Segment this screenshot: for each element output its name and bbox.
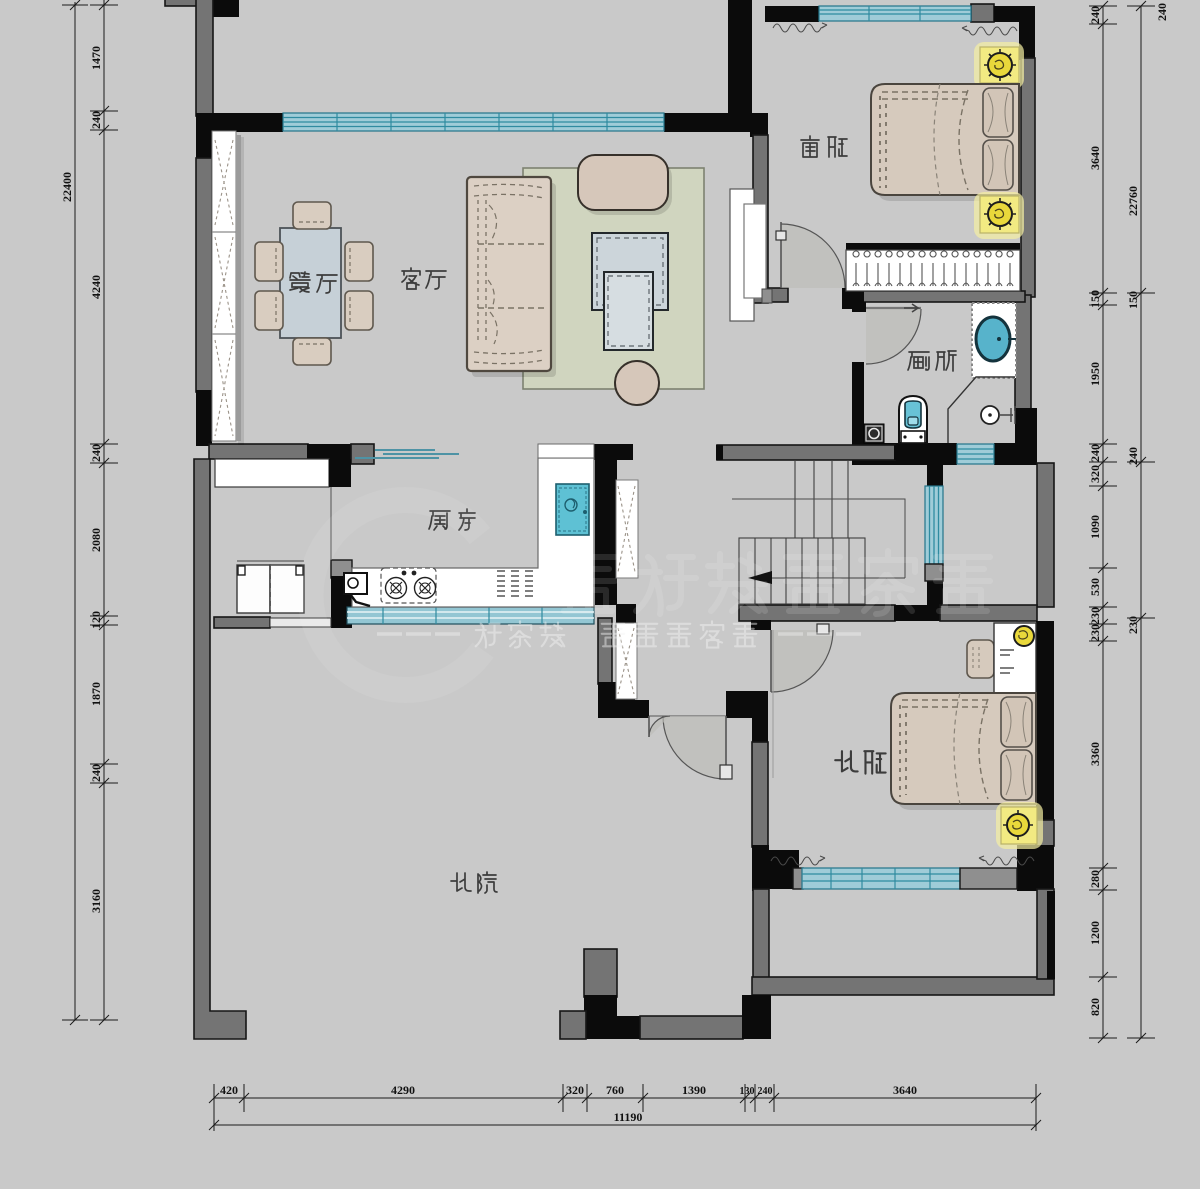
svg-text:240: 240 xyxy=(1126,447,1140,465)
svg-text:820: 820 xyxy=(1088,998,1102,1016)
svg-text:2080: 2080 xyxy=(89,528,103,552)
svg-text:1200: 1200 xyxy=(1088,921,1102,945)
svg-text:120: 120 xyxy=(89,611,103,629)
svg-text:320: 320 xyxy=(566,1083,584,1097)
svg-text:22760: 22760 xyxy=(1126,186,1140,216)
svg-text:130: 130 xyxy=(740,1086,755,1097)
svg-text:530: 530 xyxy=(1088,578,1102,596)
svg-text:3160: 3160 xyxy=(89,889,103,913)
svg-text:3640: 3640 xyxy=(893,1083,917,1097)
svg-text:1470: 1470 xyxy=(89,46,103,70)
svg-text:760: 760 xyxy=(606,1083,624,1097)
svg-text:150: 150 xyxy=(1126,291,1140,309)
svg-text:240: 240 xyxy=(89,111,103,129)
svg-text:4290: 4290 xyxy=(391,1083,415,1097)
svg-text:150: 150 xyxy=(1088,290,1102,308)
svg-text:1390: 1390 xyxy=(682,1083,706,1097)
svg-text:420: 420 xyxy=(220,1083,238,1097)
svg-text:3360: 3360 xyxy=(1088,742,1102,766)
svg-text:1950: 1950 xyxy=(1088,362,1102,386)
svg-text:1870: 1870 xyxy=(89,682,103,706)
svg-text:240: 240 xyxy=(1088,444,1102,462)
svg-text:280: 280 xyxy=(1088,870,1102,888)
svg-text:1090: 1090 xyxy=(1088,515,1102,539)
svg-text:320: 320 xyxy=(1088,465,1102,483)
svg-text:240: 240 xyxy=(1155,3,1169,21)
svg-text:11190: 11190 xyxy=(614,1110,643,1124)
svg-text:240: 240 xyxy=(89,444,103,462)
svg-text:4240: 4240 xyxy=(89,275,103,299)
svg-text:230: 230 xyxy=(1126,616,1140,634)
svg-text:240: 240 xyxy=(89,764,103,782)
svg-text:230: 230 xyxy=(1088,607,1102,625)
svg-text:240: 240 xyxy=(1088,6,1102,24)
svg-text:3640: 3640 xyxy=(1088,146,1102,170)
svg-text:240: 240 xyxy=(758,1086,773,1097)
svg-text:22400: 22400 xyxy=(60,172,74,202)
svg-text:230: 230 xyxy=(1088,624,1102,642)
